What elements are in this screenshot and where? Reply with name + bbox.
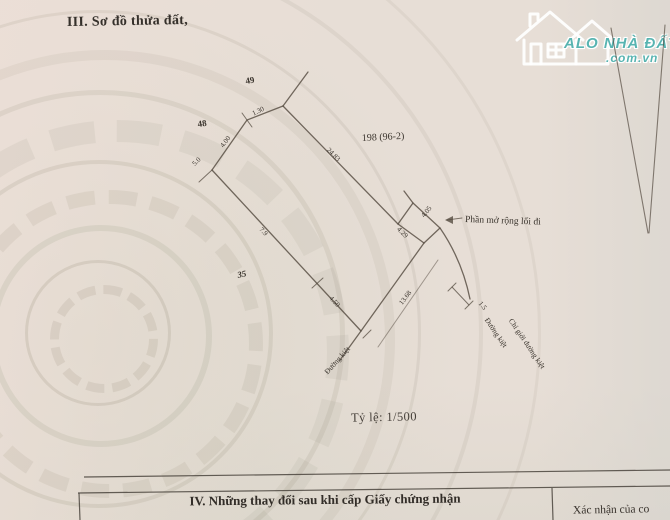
plot-sketch: 198 (96-2) 49 48 35 1.30 4.00 5.0 7.9 4.…	[0, 0, 670, 520]
annotation-arrowhead	[445, 216, 453, 224]
dimension-label: 4.00	[219, 134, 233, 149]
dimension-label: 4.05	[419, 204, 433, 219]
adjacent-parcel-label: 48	[197, 118, 208, 129]
horizontal-rule	[84, 470, 670, 477]
alley-parallel-line	[378, 260, 438, 347]
adjacent-parcel-label: 49	[245, 74, 256, 85]
dimension-label: 4.29	[395, 225, 410, 240]
dimension-label: 7.9	[258, 226, 270, 238]
alley-boundary-label: Chỉ giới đường kiệt	[507, 317, 548, 372]
dimension-label: 5.0	[191, 155, 203, 167]
adjacent-parcel-label: 35	[235, 268, 247, 280]
table-column-divider	[552, 488, 553, 520]
plot-edge-northeast	[283, 106, 398, 224]
scale-label: Tỷ lệ: 1/500	[351, 409, 417, 425]
plot-edge-southwest	[212, 170, 361, 331]
tick-mark	[363, 330, 371, 338]
dimension-segment	[452, 287, 469, 305]
alley-label-right: Đường kiệt	[483, 316, 510, 350]
plot-edge-southeast	[361, 243, 424, 331]
extension-triangle-ext	[404, 191, 413, 203]
dimension-label: 1.5	[477, 300, 489, 312]
boundary-extension-north	[283, 72, 308, 106]
parcel-label: 198 (96-2)	[362, 131, 405, 144]
dimension-label: 4.50	[327, 294, 342, 309]
certify-column-label: Xác nhận của co	[573, 503, 650, 516]
alley-curve	[440, 228, 470, 299]
dimension-label: 24.83	[325, 146, 342, 163]
extension-note: Phần mở rộng lối đi	[465, 214, 541, 228]
certificate-page: III. Sơ đồ thửa đất, ALO NHÀ ĐẤT .com.vn	[0, 0, 670, 520]
neighbor-boundary-line	[611, 28, 648, 233]
tick-mark	[199, 170, 212, 182]
table-left-border	[79, 493, 80, 520]
dimension-label: 13.68	[397, 289, 413, 307]
neighbor-boundary-line	[649, 25, 665, 233]
alley-label-bottom: Đường kiệt	[322, 344, 352, 376]
